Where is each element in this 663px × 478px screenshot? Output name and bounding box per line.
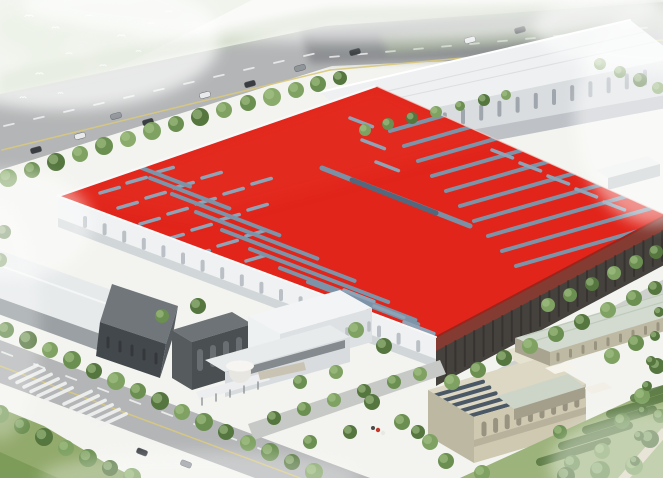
tree-highlight [575,315,584,324]
tree-highlight [649,282,657,290]
factory-campus-scene [0,0,663,478]
tree-highlight [169,117,178,126]
tree-highlight [651,332,657,338]
tree-highlight [414,368,422,376]
tree-highlight [73,147,82,156]
tree-highlight [479,95,486,102]
tree-highlight [219,425,228,434]
tree-highlight [87,364,96,373]
tree-highlight [647,357,653,363]
tree-highlight [241,436,250,445]
tree-highlight [334,72,342,80]
tree-highlight [439,454,448,463]
tree-highlight [311,77,320,86]
tree-highlight [152,393,162,403]
tree-highlight [131,384,140,393]
tree-highlight [43,343,52,352]
tree-highlight [586,278,594,286]
tree-highlight [627,291,636,300]
tree-highlight [412,426,420,434]
tree-highlight [431,107,438,114]
tree-highlight [36,429,46,439]
tree-highlight [262,444,272,454]
tree-highlight [629,336,638,345]
tree-highlight [502,91,508,97]
tree-highlight [358,385,366,393]
tree-highlight [377,339,386,348]
tree-highlight [395,415,404,424]
aerial-rendering [0,0,663,478]
tree-highlight [471,363,480,372]
tree-highlight [388,376,396,384]
tree-highlight [144,123,154,133]
tree-highlight [298,403,306,411]
tree-highlight [655,308,661,314]
tree-highlight [605,349,614,358]
tree-highlight [554,426,562,434]
tree-highlight [635,389,644,398]
people-figures [371,426,375,430]
tree-highlight [549,327,558,336]
tree-highlight [330,366,338,374]
tree-highlight [523,339,532,348]
tree-highlight [542,299,550,307]
tree-highlight [423,435,432,444]
tree-highlight [59,441,68,450]
tree-highlight [383,119,390,126]
tree-highlight [217,103,226,112]
tree-highlight [108,373,118,383]
tree-highlight [64,352,74,362]
tree-highlight [630,256,638,264]
tree-highlight [192,109,202,119]
tree-highlight [365,395,374,404]
tree-highlight [497,351,506,360]
tree-highlight [25,163,34,172]
tree-highlight [349,323,358,332]
tree-highlight [643,382,649,388]
tree-highlight [601,303,610,312]
tree-highlight [344,426,352,434]
people-figures [376,428,380,432]
gatehouse-roof [226,361,254,372]
tree-highlight [564,289,572,297]
tree-highlight [175,405,184,414]
tree-highlight [304,436,312,444]
tree-highlight [608,267,616,275]
tree-highlight [48,154,58,164]
tree-highlight [264,89,274,99]
tree-highlight [650,246,658,254]
tree-highlight [196,414,206,424]
tree-highlight [191,299,200,308]
tree-highlight [456,102,462,108]
tree-highlight [268,412,276,420]
tree-highlight [328,394,336,402]
tree-highlight [289,83,298,92]
tree-highlight [96,138,106,148]
tree-highlight [241,96,250,105]
tree-highlight [294,376,302,384]
tree-highlight [121,132,130,141]
tree-highlight [475,466,484,475]
tree-highlight [445,375,454,384]
road-center-dashes-right [330,56,339,57]
tree-highlight [156,310,164,318]
people-figures [381,431,385,435]
tree-highlight [407,113,414,120]
tree-highlight [360,125,367,132]
